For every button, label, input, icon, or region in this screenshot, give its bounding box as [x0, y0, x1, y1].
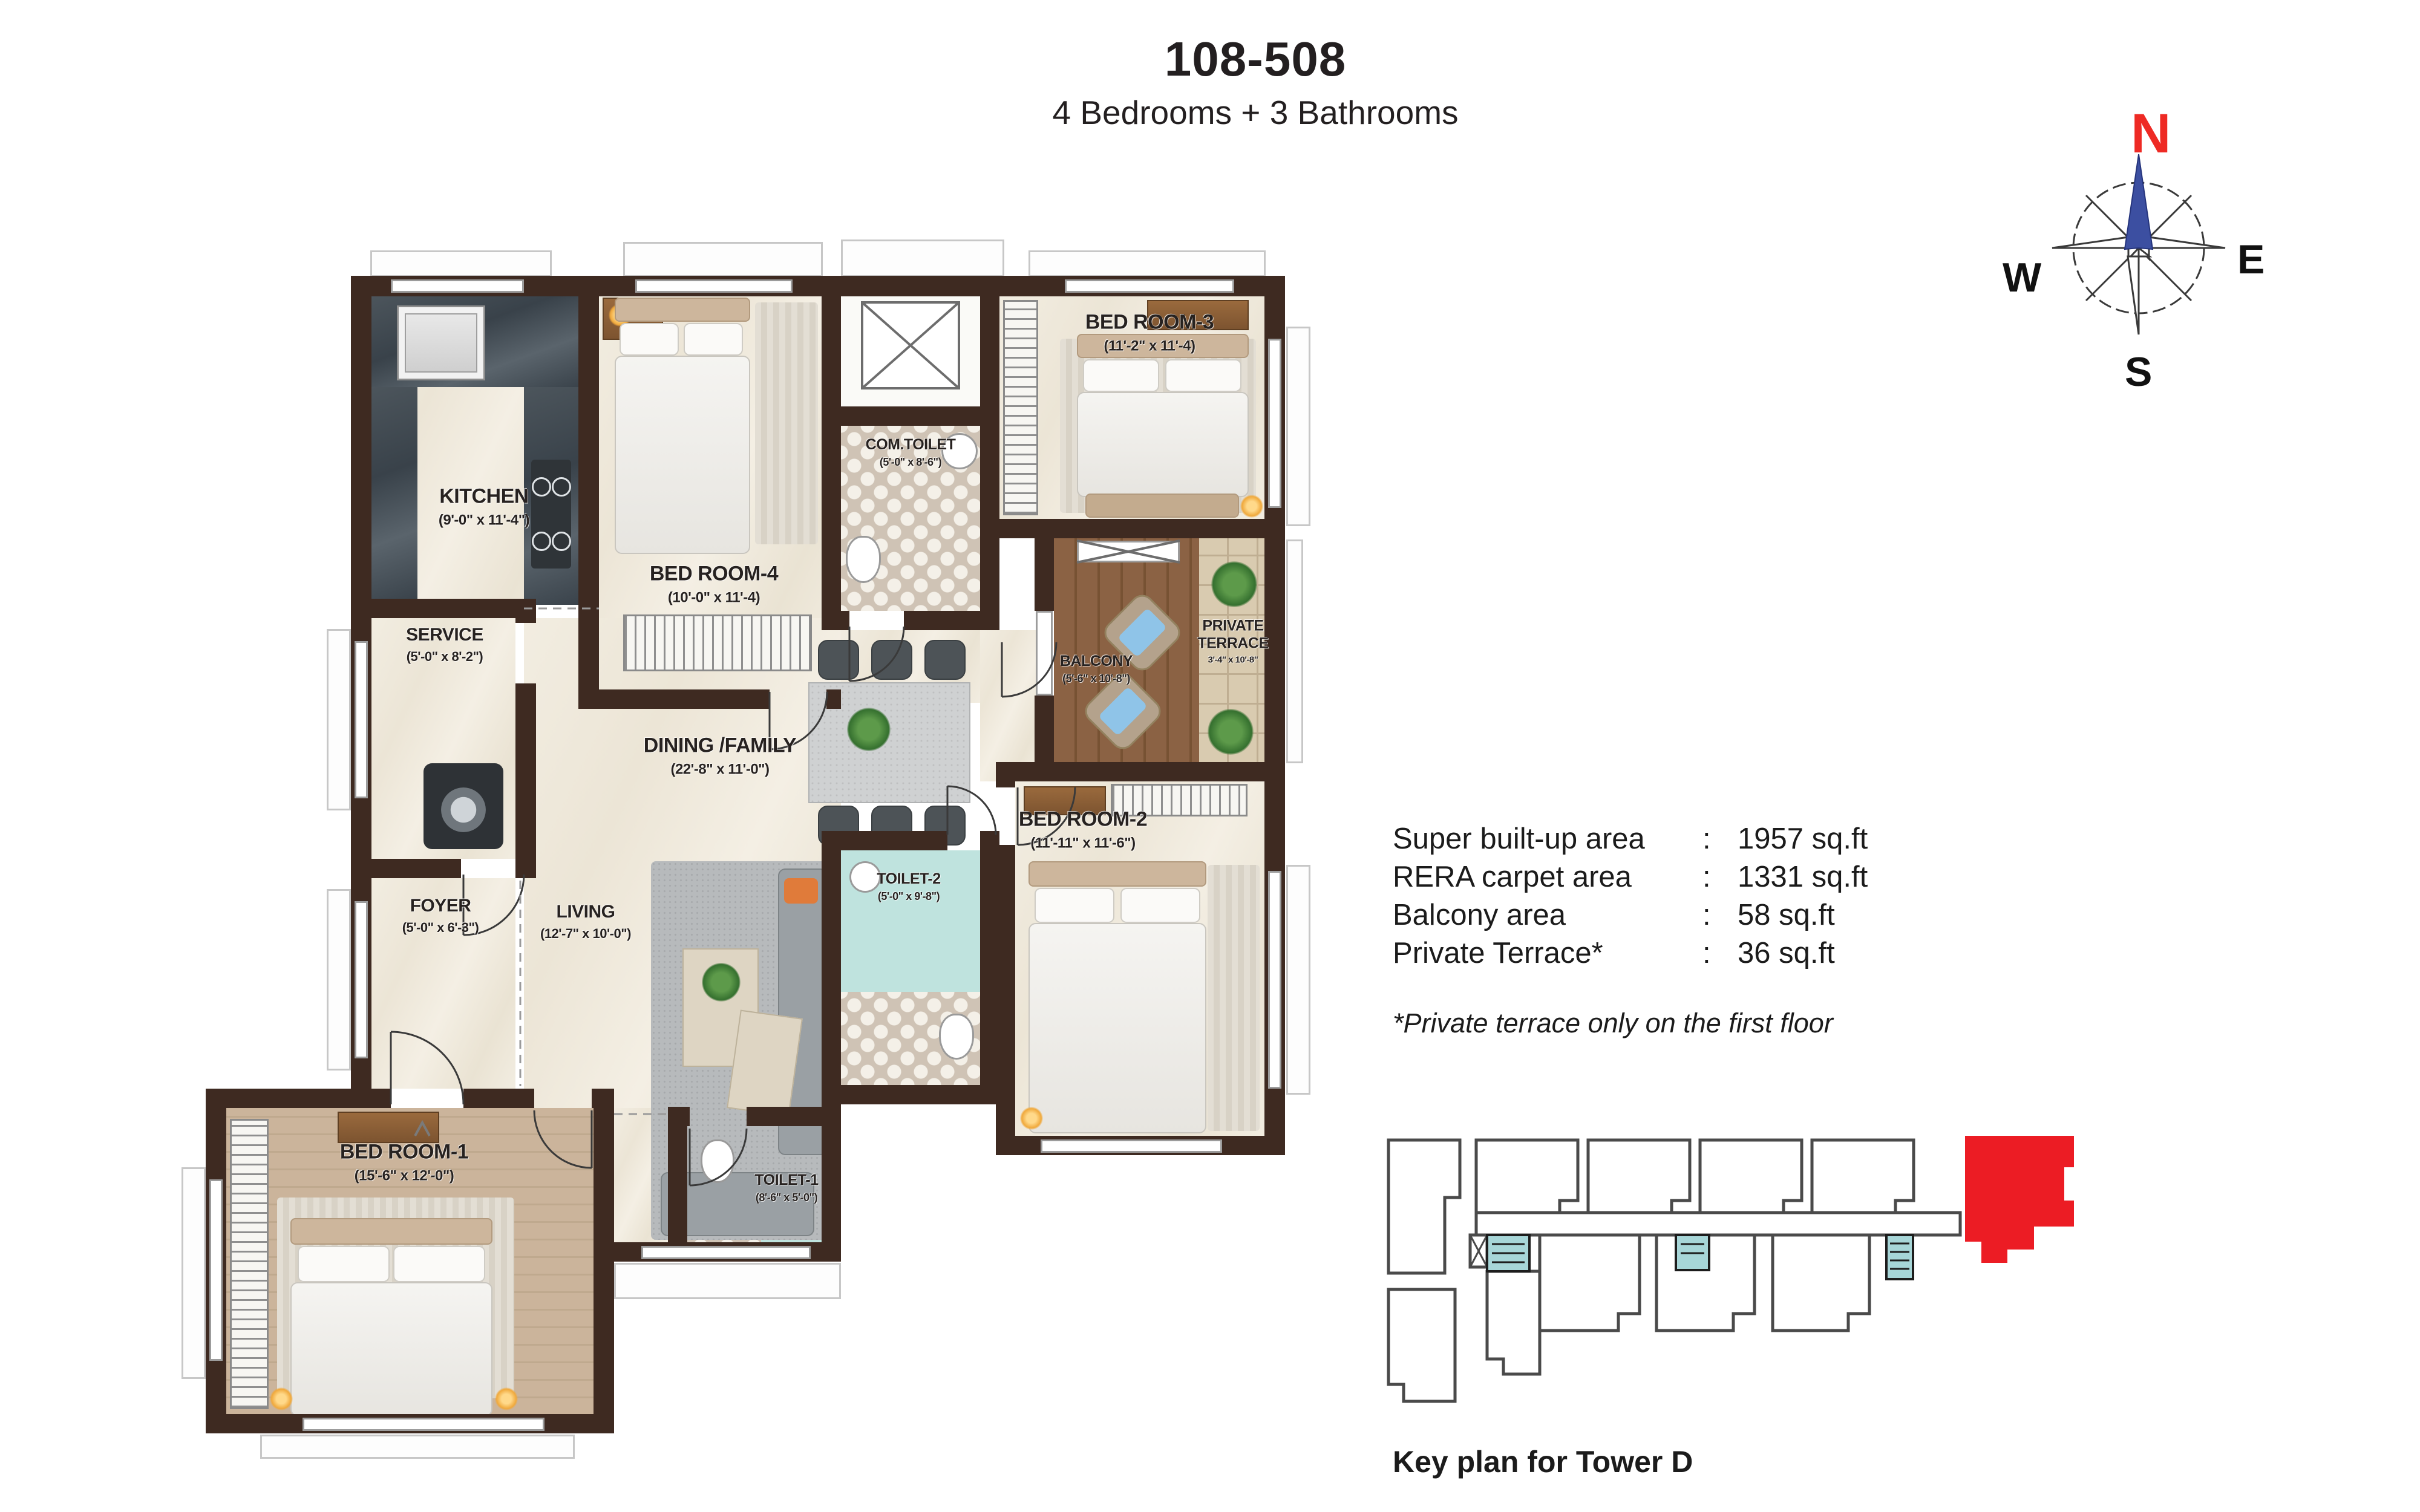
entry-arrow	[415, 1123, 430, 1136]
area-row: Balcony area : 58 sq.ft	[1393, 896, 1868, 934]
compass-w: W	[2003, 255, 2042, 301]
highlighted-unit	[1965, 1136, 2074, 1263]
room-label-bedroom4: BED ROOM-4 (10'-0" x 11'-4)	[650, 562, 778, 607]
compass-n: N	[2131, 103, 2171, 165]
room-label-toilet2: TOILET-2 (5'-0" x 9'-8")	[877, 870, 940, 903]
room-label-comtoilet: COM.TOILET (5'-0" x 8'-6")	[866, 436, 956, 469]
area-table: Super built-up area : 1957 sq.ft RERA ca…	[1393, 820, 1868, 973]
room-label-living: LIVING (12'-7" x 10'-0")	[540, 902, 631, 942]
terrace-footnote: *Private terrace only on the first floor	[1393, 1008, 1833, 1039]
compass-s: S	[2125, 349, 2152, 395]
floor-plan: KITCHEN (9'-0" x 11'-4") BED ROOM-4 (10'…	[0, 0, 1391, 1512]
key-plan-caption: Key plan for Tower D	[1393, 1444, 1693, 1479]
room-label-bedroom3: BED ROOM-3 (11'-2" x 11'-4)	[1085, 311, 1214, 355]
room-label-balcony: BALCONY (5'-6" x 10'-8")	[1060, 653, 1133, 685]
key-plan	[1385, 1131, 2087, 1415]
room-label-toilet1: TOILET-1 (8'-6" x 5'-0")	[754, 1171, 818, 1204]
room-label-dining: DINING /FAMILY (22'-8" x 11'-0")	[644, 734, 796, 778]
room-label-foyer: FOYER (5'-0" x 6'-3")	[402, 896, 479, 936]
room-label-bedroom2: BED ROOM-2 (11'-11" x 11'-6")	[1019, 808, 1147, 852]
area-row: RERA carpet area : 1331 sq.ft	[1393, 858, 1868, 896]
area-row: Private Terrace* : 36 sq.ft	[1393, 934, 1868, 973]
room-label-terrace: PRIVATE TERRACE 3'-4" x 10'-8"	[1188, 618, 1278, 665]
room-label-kitchen: KITCHEN (9'-0" x 11'-4")	[439, 485, 529, 529]
compass-e: E	[2237, 236, 2265, 282]
room-label-service: SERVICE (5'-0" x 8'-2")	[406, 625, 483, 665]
compass-rose: N E S W	[1996, 97, 2287, 399]
north-needle	[2125, 154, 2153, 249]
area-row: Super built-up area : 1957 sq.ft	[1393, 820, 1868, 858]
room-label-bedroom1: BED ROOM-1 (15'-6" x 12'-0")	[340, 1141, 468, 1185]
